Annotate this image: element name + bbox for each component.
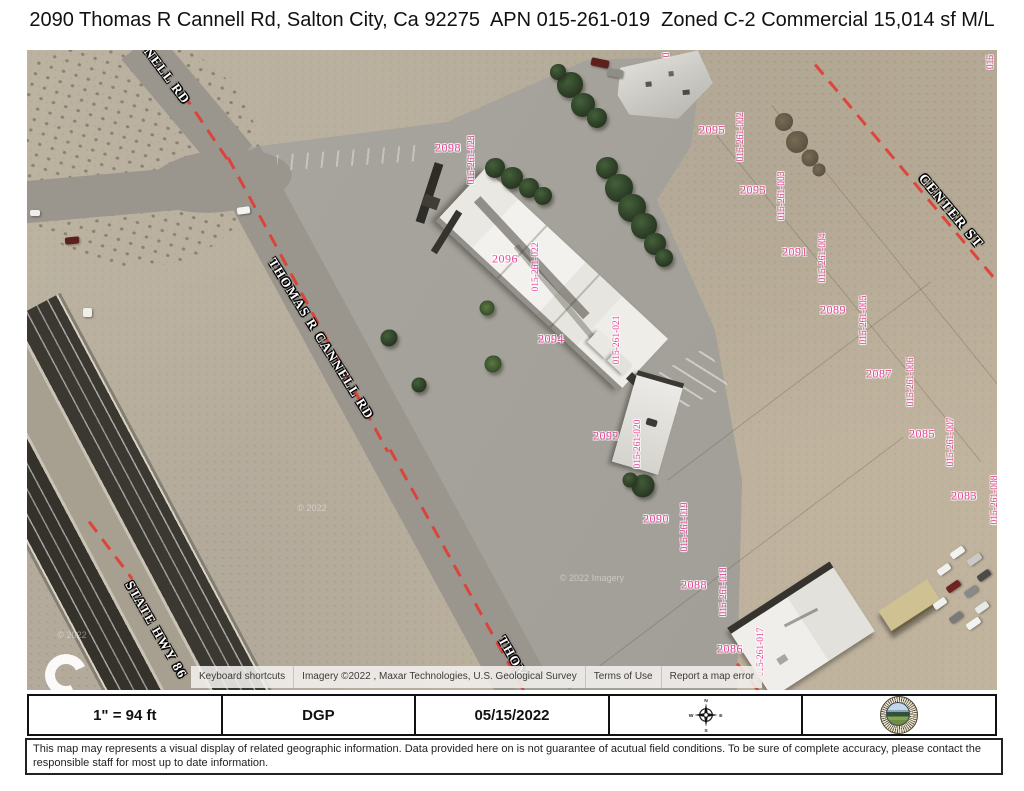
- map-info-table: 1" = 94 ft DGP 05/15/2022 N S W E: [27, 694, 997, 736]
- street-name-label: NELL RD: [140, 50, 193, 108]
- compass-n: N: [704, 698, 708, 704]
- imagery-watermark: © 2022: [57, 630, 86, 640]
- parcel-number-label: 2088: [681, 578, 707, 593]
- parcel-number-label: 2092: [593, 429, 619, 444]
- preparer-initials: DGP: [302, 707, 335, 724]
- apn-label: 015-261-023: [467, 135, 477, 184]
- compass-s: S: [704, 728, 708, 733]
- compass-w: W: [688, 713, 693, 719]
- map-date: 05/15/2022: [474, 707, 549, 724]
- page: 2090 Thomas R Cannell Rd, Salton City, C…: [0, 0, 1024, 791]
- parcel-number-label: 2095: [699, 123, 725, 138]
- map-attribution-bar: Keyboard shortcuts Imagery ©2022 , Maxar…: [191, 666, 762, 688]
- scale-value: 1" = 94 ft: [93, 707, 156, 724]
- compass-rose-icon: N S W E: [688, 697, 724, 733]
- parcel-number-label: 2086: [717, 642, 743, 657]
- apn-label: 015-261-020: [633, 419, 643, 468]
- street-name-label: CENTER ST: [914, 171, 986, 252]
- compass-e: E: [719, 713, 723, 719]
- street-name-label: STATE HWY 86: [122, 578, 191, 681]
- apn-label: 015-261-003: [777, 171, 787, 220]
- imagery-watermark: © 2022: [297, 503, 326, 513]
- parcel-number-label: 2087: [866, 367, 892, 382]
- keyboard-shortcuts-link[interactable]: Keyboard shortcuts: [191, 666, 293, 688]
- terms-of-use-link[interactable]: Terms of Use: [585, 666, 661, 688]
- apn-label: 015: [986, 55, 996, 69]
- apn-label: 015-261-021: [612, 315, 622, 364]
- county-seal-logo: [880, 696, 918, 734]
- apn-label: 015-261-008: [990, 475, 997, 524]
- street-name-label: THOMAS R CANNELL RD: [265, 255, 378, 422]
- scale-cell: 1" = 94 ft: [29, 696, 223, 734]
- apn-label: 015-261-004: [818, 233, 828, 282]
- imagery-credit-text: Imagery ©2022 , Maxar Technologies, U.S.…: [293, 666, 585, 688]
- date-cell: 05/15/2022: [416, 696, 610, 734]
- seal-cell: [803, 696, 995, 734]
- parcel-number-label: 2093: [740, 183, 766, 198]
- map-labels-layer: 2098209620942092209020882086209520932091…: [27, 50, 997, 690]
- apn-label: 015-261-002: [736, 112, 746, 161]
- parcel-number-label: 2089: [820, 303, 846, 318]
- seal-landscape: [886, 702, 910, 726]
- compass-cell: N S W E: [610, 696, 804, 734]
- apn-label: 015-261-022: [531, 242, 541, 291]
- report-map-error-link[interactable]: Report a map error: [661, 666, 762, 688]
- parcel-number-label: 2096: [492, 252, 518, 267]
- apn-label: 015-261-018: [719, 567, 729, 616]
- apn-label: 015-261-007: [946, 417, 956, 466]
- satellite-map[interactable]: 2098209620942092209020882086209520932091…: [27, 50, 997, 690]
- page-title: 2090 Thomas R Cannell Rd, Salton City, C…: [0, 9, 1024, 32]
- apn-label: 015-261-006: [906, 357, 916, 406]
- apn-label: 015-261-005: [859, 295, 869, 344]
- parcel-number-label: 2090: [643, 512, 669, 527]
- parcel-number-label: 2091: [782, 245, 808, 260]
- apn-label: 0: [662, 53, 672, 58]
- preparer-cell: DGP: [223, 696, 417, 734]
- apn-label: 015-261-019: [680, 502, 690, 551]
- parcel-number-label: 2085: [909, 427, 935, 442]
- parcel-number-label: 2083: [951, 489, 977, 504]
- parcel-number-label: 2098: [435, 141, 461, 156]
- parcel-number-label: 2094: [538, 332, 564, 347]
- disclaimer-text: This map may represents a visual display…: [25, 738, 1003, 775]
- imagery-watermark: © 2022 Imagery: [560, 573, 624, 583]
